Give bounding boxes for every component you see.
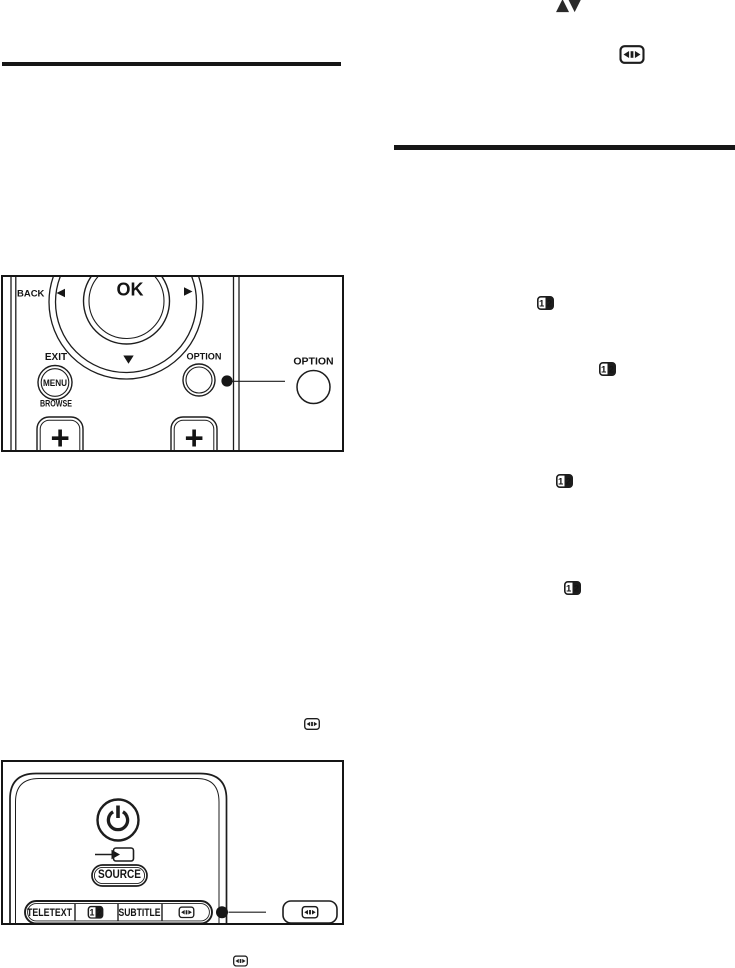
remote-body-edges — [11, 277, 239, 450]
volume-up-label: + — [51, 419, 70, 450]
dual-screen-icon — [537, 296, 554, 310]
picture-format-icon — [179, 907, 194, 918]
option-callout-label: OPTION — [293, 356, 333, 368]
source-key-label: SOURCE — [98, 869, 141, 881]
source-key: SOURCE — [92, 865, 147, 886]
manual-page: { "colors": { "paper": "#ffffff", "ink":… — [0, 0, 735, 968]
callout-dot — [221, 375, 232, 386]
picture-format-icon — [304, 718, 320, 730]
arrow-right-icon — [184, 287, 193, 295]
up-down-arrows-icon: ▲▼ — [556, 0, 580, 14]
back-key-label: BACK — [17, 289, 45, 300]
power-key — [98, 800, 139, 841]
option-callout-key — [297, 371, 330, 404]
remote-picture-format-figure: SOURCE TELETEXT SUBTITLE — [1, 760, 344, 925]
option-callout: OPTION — [221, 356, 333, 404]
source-input-icon — [95, 848, 134, 861]
left-column-section-rule — [2, 62, 341, 66]
callout-dot — [216, 906, 228, 918]
remote-option-key-figure: OK BACK EXIT MENU BROWSE OPTION OPTION — [1, 275, 344, 452]
remote-nav-illustration: OK BACK EXIT MENU BROWSE OPTION OPTION — [3, 277, 342, 450]
bottom-key-row: TELETEXT SUBTITLE — [25, 901, 212, 923]
channel-up-label: + — [185, 419, 204, 450]
picture-format-callout — [216, 901, 337, 923]
power-icon — [108, 806, 127, 830]
option-key: OPTION — [183, 352, 222, 397]
picture-format-icon — [302, 907, 317, 918]
option-key-label: OPTION — [187, 352, 222, 362]
picture-format-icon — [233, 955, 248, 967]
dual-screen-icon — [556, 474, 573, 488]
picture-format-icon — [619, 45, 645, 64]
exit-key-label: EXIT — [45, 352, 67, 363]
volume-up-key: + — [37, 417, 83, 450]
subtitle-key-label: SUBTITLE — [119, 907, 161, 919]
channel-up-key: + — [171, 417, 217, 450]
right-column-section-rule — [394, 145, 735, 150]
dual-screen-icon — [564, 581, 581, 595]
remote-top-illustration: SOURCE TELETEXT SUBTITLE — [3, 762, 342, 923]
dual-screen-icon — [599, 362, 616, 376]
menu-button: MENU — [38, 366, 72, 400]
dual-screen-icon — [88, 907, 102, 919]
arrow-left-icon — [57, 289, 66, 298]
browse-key-label: BROWSE — [40, 399, 72, 409]
ok-label: OK — [117, 280, 144, 300]
arrow-down-icon — [123, 356, 133, 364]
menu-key-label: MENU — [43, 378, 67, 388]
ok-button: OK — [84, 277, 170, 344]
teletext-key-label: TELETEXT — [27, 907, 72, 919]
